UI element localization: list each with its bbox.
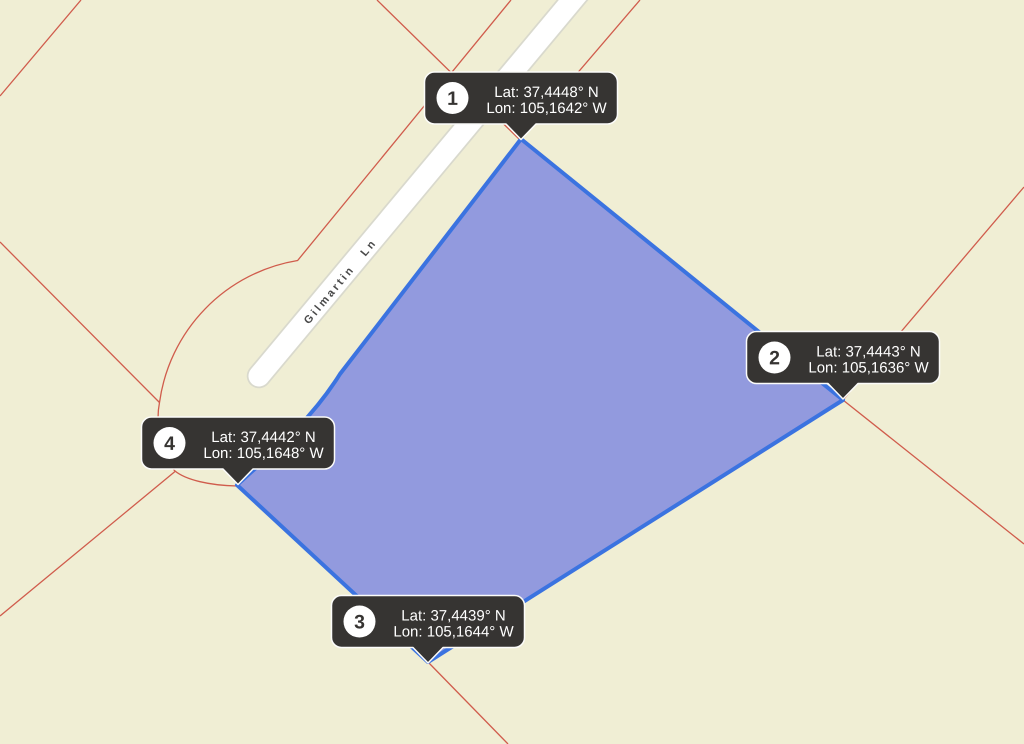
svg-text:Lon: 105,1636° W: Lon: 105,1636° W bbox=[808, 359, 929, 376]
svg-text:Lat: 37,4442° N: Lat: 37,4442° N bbox=[211, 429, 315, 446]
svg-text:1: 1 bbox=[447, 88, 458, 110]
svg-text:Lat: 37,4443° N: Lat: 37,4443° N bbox=[816, 343, 920, 360]
svg-text:Lon: 105,1648° W: Lon: 105,1648° W bbox=[203, 445, 324, 462]
svg-text:4: 4 bbox=[164, 433, 175, 455]
svg-text:Lon: 105,1642° W: Lon: 105,1642° W bbox=[486, 100, 607, 117]
svg-text:Lat: 37,4448° N: Lat: 37,4448° N bbox=[494, 84, 598, 101]
svg-text:2: 2 bbox=[769, 347, 780, 369]
svg-text:Lon: 105,1644° W: Lon: 105,1644° W bbox=[393, 623, 514, 640]
svg-text:3: 3 bbox=[354, 611, 365, 633]
svg-text:Lat: 37,4439° N: Lat: 37,4439° N bbox=[401, 607, 505, 624]
